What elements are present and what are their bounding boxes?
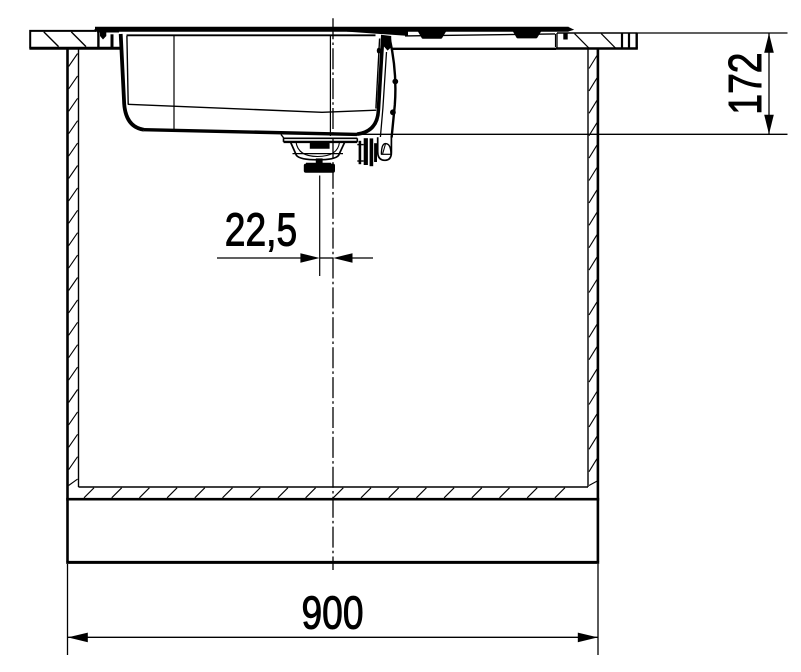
svg-text:22,5: 22,5	[225, 204, 297, 256]
svg-text:900: 900	[301, 586, 363, 638]
svg-text:172: 172	[719, 53, 771, 115]
